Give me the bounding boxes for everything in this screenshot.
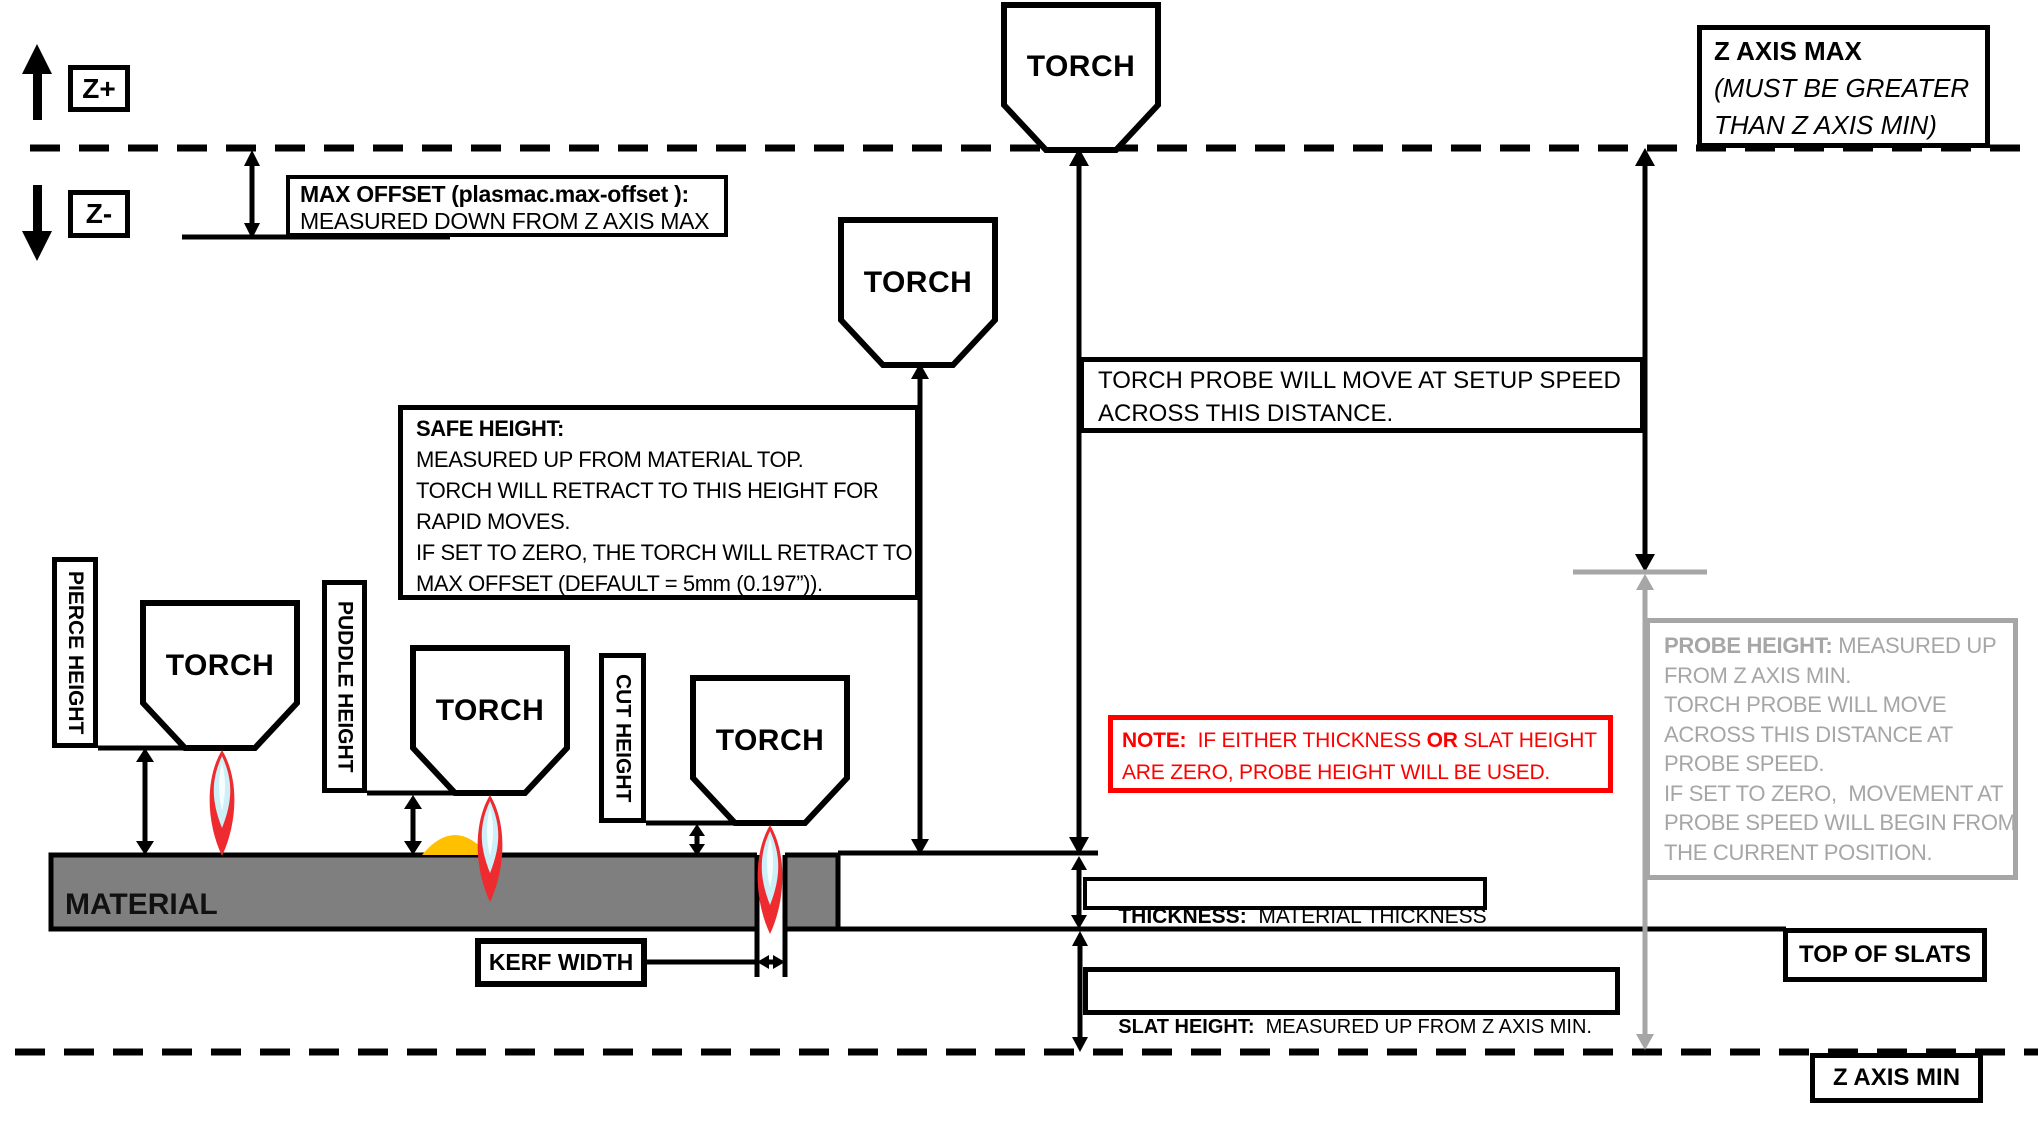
pierce-height-label: PIERCE HEIGHT: [63, 571, 87, 734]
probe-height-line2: FROM Z AXIS MIN.: [1664, 661, 2013, 691]
z-axis-max-box: Z AXIS MAX (MUST BE GREATER THAN Z AXIS …: [1697, 25, 1990, 148]
setup-speed-line2: ACROSS THIS DISTANCE.: [1098, 397, 1640, 430]
puddle-height-arrow: [404, 795, 422, 855]
torch-pierce-label: TORCH: [143, 649, 297, 683]
pierce-height-label-box: PIERCE HEIGHT: [52, 557, 98, 748]
z-axis-max-title: Z AXIS MAX: [1714, 33, 1985, 70]
torch-probe-top-label: TORCH: [1004, 50, 1158, 84]
z-axis-min-label: Z AXIS MIN: [1833, 1064, 1960, 1092]
note-line2: ARE ZERO, PROBE HEIGHT WILL BE USED.: [1122, 757, 1608, 789]
plasma-height-diagram: Z+ Z- MAX OFFSET (plasmac.max-offset ): …: [0, 0, 2038, 1145]
torch-safe-height-label: TORCH: [841, 266, 995, 300]
probe-height-line1-rest: MEASURED UP: [1832, 633, 1996, 658]
note-bold-or: OR: [1427, 729, 1458, 752]
probe-height-box: PROBE HEIGHT: MEASURED UP FROM Z AXIS MI…: [1645, 618, 2018, 880]
torch-cut-label: TORCH: [693, 724, 847, 758]
probe-height-line7: PROBE SPEED WILL BEGIN FROM: [1664, 808, 2013, 838]
safe-height-title: SAFE HEIGHT:: [416, 413, 915, 444]
slat-height-box: SLAT HEIGHT: MEASURED UP FROM Z AXIS MIN…: [1083, 967, 1620, 1015]
setup-speed-line1: TORCH PROBE WILL MOVE AT SETUP SPEED: [1098, 364, 1640, 397]
thickness-title: THICKNESS:: [1118, 905, 1246, 928]
probe-travel-arrow: [1069, 148, 1089, 855]
pierce-height-arrow: [136, 748, 154, 855]
note-seg1: IF EITHER THICKNESS: [1186, 729, 1426, 752]
probe-height-title: PROBE HEIGHT:: [1664, 633, 1832, 658]
kerf-width-box: KERF WIDTH: [475, 938, 647, 987]
cut-height-label: CUT HEIGHT: [611, 674, 635, 802]
diagram-canvas: [0, 0, 2038, 1145]
probe-height-line3: TORCH PROBE WILL MOVE: [1664, 690, 2013, 720]
safe-height-box: SAFE HEIGHT: MEASURED UP FROM MATERIAL T…: [398, 405, 920, 600]
safe-height-line1: MEASURED UP FROM MATERIAL TOP.: [416, 444, 915, 475]
probe-height-line8: THE CURRENT POSITION.: [1664, 838, 2013, 868]
kerf-width-label: KERF WIDTH: [489, 949, 633, 976]
safe-height-line5: MAX OFFSET (DEFAULT = 5mm (0.197”)).: [416, 568, 915, 599]
z-minus-label-box: Z-: [68, 190, 130, 238]
puddle-height-label-box: PUDDLE HEIGHT: [322, 580, 367, 793]
max-offset-arrow: [244, 150, 260, 239]
torch-puddle-label: TORCH: [413, 694, 567, 728]
probe-height-line6: IF SET TO ZERO, MOVEMENT AT: [1664, 779, 2013, 809]
top-of-slats-label: TOP OF SLATS: [1799, 941, 1971, 969]
z-minus-arrow-icon: [22, 185, 52, 261]
pierce-flame-icon: [210, 750, 235, 856]
note-line1: NOTE: IF EITHER THICKNESS OR SLAT HEIGHT: [1122, 725, 1608, 757]
max-offset-line2: MEASURED DOWN FROM Z AXIS MAX: [300, 208, 724, 235]
z-plus-arrow-icon: [22, 44, 52, 120]
setup-speed-box: TORCH PROBE WILL MOVE AT SETUP SPEED ACR…: [1079, 357, 1645, 433]
material-label: MATERIAL: [65, 888, 218, 922]
note-seg2: SLAT HEIGHT: [1458, 729, 1597, 752]
thickness-box: THICKNESS: MATERIAL THICKNESS: [1083, 877, 1487, 910]
z-plus-label-box: Z+: [68, 65, 130, 112]
probe-height-line4: ACROSS THIS DISTANCE AT: [1664, 720, 2013, 750]
safe-height-line4: IF SET TO ZERO, THE TORCH WILL RETRACT T…: [416, 537, 915, 568]
z-minus-label: Z-: [86, 198, 112, 230]
note-box: NOTE: IF EITHER THICKNESS OR SLAT HEIGHT…: [1108, 715, 1613, 793]
safe-height-line2: TORCH WILL RETRACT TO THIS HEIGHT FOR: [416, 475, 915, 506]
probe-height-line5: PROBE SPEED.: [1664, 749, 2013, 779]
safe-height-line3: RAPID MOVES.: [416, 506, 915, 537]
z-axis-min-box: Z AXIS MIN: [1810, 1053, 1983, 1103]
cut-height-arrow: [689, 824, 705, 856]
z-axis-max-note-line2: THAN Z AXIS MIN): [1714, 107, 1985, 144]
z-axis-max-note-line1: (MUST BE GREATER: [1714, 70, 1985, 107]
max-offset-title: MAX OFFSET (plasmac.max-offset ):: [300, 181, 724, 208]
thickness-text: MATERIAL THICKNESS: [1247, 905, 1487, 928]
kerf-width-arrow: [647, 955, 785, 969]
cut-height-label-box: CUT HEIGHT: [599, 653, 646, 823]
z-plus-label: Z+: [82, 73, 115, 105]
probe-height-line1: PROBE HEIGHT: MEASURED UP: [1664, 631, 2013, 661]
puddle-height-label: PUDDLE HEIGHT: [333, 601, 357, 773]
top-of-slats-box: TOP OF SLATS: [1783, 928, 1987, 982]
note-bold-prefix: NOTE:: [1122, 729, 1186, 752]
slat-height-title: SLAT HEIGHT:: [1118, 1016, 1254, 1038]
max-offset-box: MAX OFFSET (plasmac.max-offset ): MEASUR…: [286, 175, 728, 237]
slat-height-text: MEASURED UP FROM Z AXIS MIN.: [1255, 1016, 1592, 1038]
